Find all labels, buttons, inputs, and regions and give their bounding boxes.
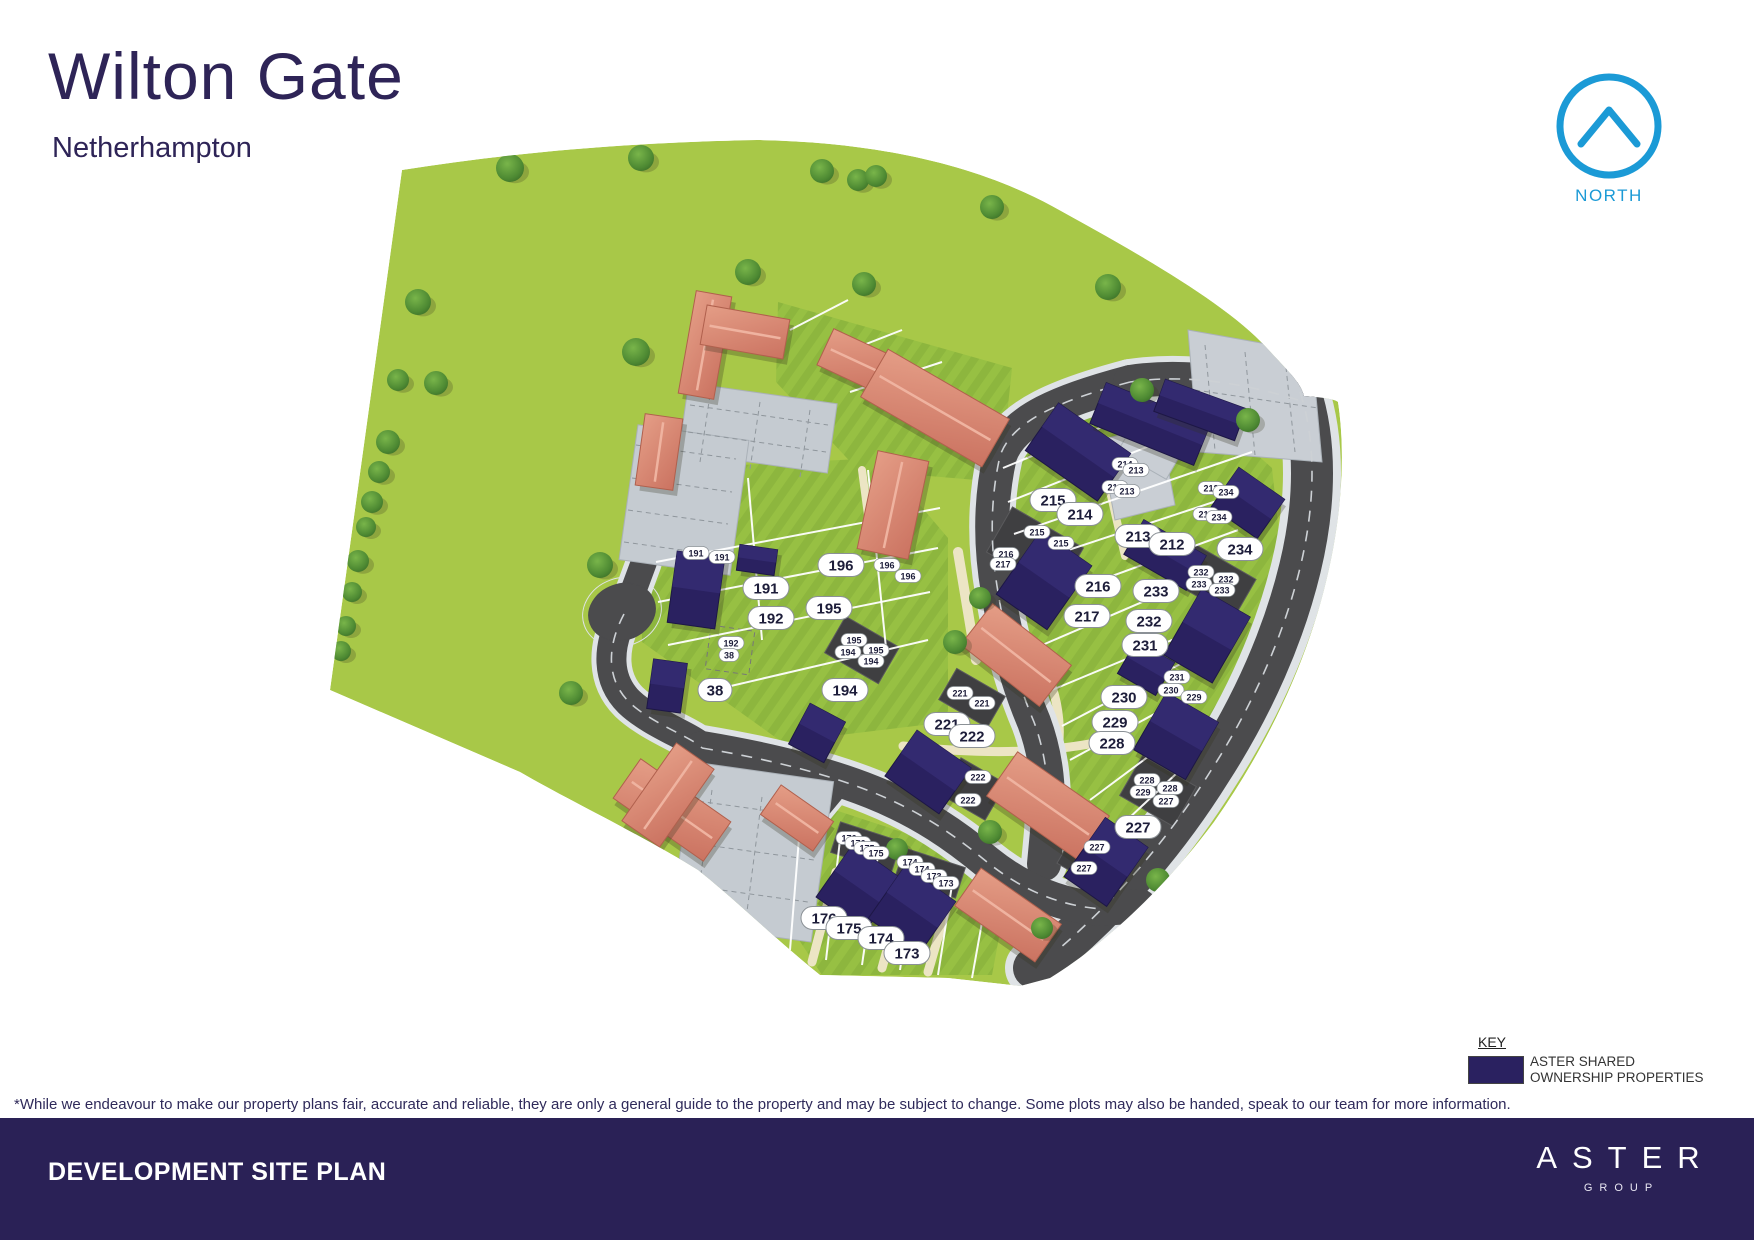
svg-text:234: 234 <box>1218 487 1233 497</box>
svg-text:232: 232 <box>1136 613 1161 630</box>
plot-label-234: 234 <box>1217 538 1263 561</box>
plot-label-213: 213 <box>1123 464 1149 477</box>
svg-text:213: 213 <box>1128 465 1143 475</box>
plot-label-192: 192 <box>718 637 744 650</box>
svg-text:227: 227 <box>1076 863 1091 873</box>
plot-label-215: 215 <box>1024 526 1050 539</box>
plot-label-214: 214 <box>1057 503 1103 526</box>
disclaimer-text: *While we endeavour to make our property… <box>14 1096 1734 1113</box>
svg-text:228: 228 <box>1162 783 1177 793</box>
plot-label-234: 234 <box>1213 486 1239 499</box>
svg-text:194: 194 <box>863 656 878 666</box>
plot-label-228: 228 <box>1089 732 1135 755</box>
svg-text:222: 222 <box>959 728 984 745</box>
footer-title: DEVELOPMENT SITE PLAN <box>48 1158 386 1187</box>
svg-text:191: 191 <box>714 552 729 562</box>
svg-text:195: 195 <box>846 635 861 645</box>
svg-text:234: 234 <box>1211 512 1226 522</box>
plot-label-233: 233 <box>1133 580 1179 603</box>
svg-text:232: 232 <box>1218 574 1233 584</box>
shared-ownership-swatch <box>1468 1056 1524 1084</box>
svg-text:195: 195 <box>868 645 883 655</box>
plot-label-232: 232 <box>1126 610 1172 633</box>
svg-text:216: 216 <box>1085 578 1110 595</box>
svg-text:192: 192 <box>758 610 783 627</box>
map-key: KEY ASTER SHARED OWNERSHIP PROPERTIES <box>1468 1034 1738 1086</box>
site-plan-page: 1911911923819619619519519419421521521621… <box>0 0 1754 1240</box>
plot-label-221: 221 <box>947 687 973 700</box>
plot-label-227: 227 <box>1084 841 1110 854</box>
svg-text:217: 217 <box>995 559 1010 569</box>
svg-text:173: 173 <box>938 878 953 888</box>
plot-label-215: 215 <box>1048 537 1074 550</box>
svg-text:231: 231 <box>1132 637 1157 654</box>
plot-label-229: 229 <box>1092 711 1138 734</box>
brand-subtitle: GROUP <box>1508 1182 1728 1194</box>
svg-text:196: 196 <box>879 560 894 570</box>
shared-ownership-house <box>646 659 692 719</box>
plot-label-213: 213 <box>1114 485 1140 498</box>
plot-label-221: 221 <box>969 697 995 710</box>
north-label: NORTH <box>1544 186 1674 206</box>
plot-label-233: 233 <box>1186 578 1212 591</box>
plot-label-175: 175 <box>863 847 889 860</box>
plot-label-195: 195 <box>806 597 852 620</box>
svg-text:214: 214 <box>1067 506 1093 523</box>
plot-label-212: 212 <box>1149 533 1195 556</box>
key-label: ASTER SHARED OWNERSHIP PROPERTIES <box>1530 1054 1704 1086</box>
plot-label-227: 227 <box>1153 795 1179 808</box>
plot-label-222: 222 <box>955 794 981 807</box>
plot-label-191: 191 <box>743 577 789 600</box>
svg-text:192: 192 <box>723 638 738 648</box>
svg-text:196: 196 <box>828 557 853 574</box>
north-compass: NORTH <box>1544 70 1674 206</box>
svg-text:221: 221 <box>952 688 967 698</box>
plot-label-191: 191 <box>709 551 735 564</box>
svg-text:231: 231 <box>1169 672 1184 682</box>
svg-text:222: 222 <box>970 772 985 782</box>
plot-label-194: 194 <box>858 655 884 668</box>
plot-label-196: 196 <box>874 559 900 572</box>
svg-text:212: 212 <box>1159 536 1184 553</box>
svg-text:195: 195 <box>816 600 841 617</box>
plot-label-231: 231 <box>1164 671 1190 684</box>
svg-text:229: 229 <box>1102 714 1127 731</box>
svg-text:215: 215 <box>1053 538 1068 548</box>
plot-label-173: 173 <box>933 877 959 890</box>
plot-label-217: 217 <box>990 558 1016 571</box>
plot-label-195: 195 <box>841 634 867 647</box>
plot-label-196: 196 <box>895 570 921 583</box>
plot-label-229: 229 <box>1130 786 1156 799</box>
key-title: KEY <box>1478 1034 1738 1050</box>
svg-text:229: 229 <box>1186 692 1201 702</box>
plot-label-222: 222 <box>965 771 991 784</box>
plot-label-194: 194 <box>835 646 861 659</box>
svg-text:173: 173 <box>894 945 919 962</box>
svg-text:228: 228 <box>1139 775 1154 785</box>
svg-text:213: 213 <box>1125 528 1150 545</box>
svg-text:230: 230 <box>1111 689 1136 706</box>
plot-label-217: 217 <box>1064 605 1110 628</box>
svg-text:227: 227 <box>1158 796 1173 806</box>
plot-label-228: 228 <box>1134 774 1160 787</box>
svg-text:229: 229 <box>1135 787 1150 797</box>
plot-label-191: 191 <box>683 547 709 560</box>
aster-group-logo: ASTER GROUP <box>1508 1140 1728 1194</box>
plot-label-216: 216 <box>1075 575 1121 598</box>
plot-label-230: 230 <box>1101 686 1147 709</box>
svg-text:230: 230 <box>1163 685 1178 695</box>
svg-text:227: 227 <box>1089 842 1104 852</box>
svg-text:213: 213 <box>1119 486 1134 496</box>
plot-label-230: 230 <box>1158 684 1184 697</box>
svg-text:215: 215 <box>1029 527 1044 537</box>
svg-text:232: 232 <box>1193 567 1208 577</box>
svg-text:191: 191 <box>753 580 778 597</box>
plot-label-194: 194 <box>822 679 868 702</box>
svg-text:233: 233 <box>1143 583 1168 600</box>
plot-label-228: 228 <box>1157 782 1183 795</box>
svg-text:217: 217 <box>1074 608 1099 625</box>
plot-label-232: 232 <box>1188 566 1214 579</box>
svg-text:175: 175 <box>836 920 861 937</box>
plot-label-196: 196 <box>818 554 864 577</box>
plot-label-173: 173 <box>884 942 930 965</box>
svg-text:38: 38 <box>707 682 724 699</box>
plot-label-229: 229 <box>1181 691 1207 704</box>
footer-bar: DEVELOPMENT SITE PLAN ASTER GROUP <box>0 1118 1754 1240</box>
plot-label-227: 227 <box>1071 862 1097 875</box>
page-subtitle: Netherhampton <box>52 132 252 165</box>
plot-label-234: 234 <box>1206 511 1232 524</box>
svg-text:194: 194 <box>840 647 855 657</box>
svg-text:222: 222 <box>960 795 975 805</box>
page-title: Wilton Gate <box>48 38 404 114</box>
plot-label-233: 233 <box>1209 584 1235 597</box>
svg-text:175: 175 <box>868 848 883 858</box>
svg-text:233: 233 <box>1214 585 1229 595</box>
svg-text:196: 196 <box>900 571 915 581</box>
plot-label-38: 38 <box>719 649 739 662</box>
svg-text:233: 233 <box>1191 579 1206 589</box>
svg-text:234: 234 <box>1227 541 1253 558</box>
shared-ownership-house <box>736 544 783 581</box>
north-arrow-icon <box>1553 70 1665 182</box>
plot-label-222: 222 <box>949 725 995 748</box>
svg-text:228: 228 <box>1099 735 1124 752</box>
svg-text:38: 38 <box>724 650 734 660</box>
plot-label-192: 192 <box>748 607 794 630</box>
plot-label-38: 38 <box>698 679 732 702</box>
plot-label-227: 227 <box>1115 816 1161 839</box>
svg-text:227: 227 <box>1125 819 1150 836</box>
plot-label-231: 231 <box>1122 634 1168 657</box>
svg-text:191: 191 <box>688 548 703 558</box>
svg-text:221: 221 <box>974 698 989 708</box>
brand-name: ASTER <box>1508 1140 1728 1176</box>
svg-text:194: 194 <box>832 682 858 699</box>
